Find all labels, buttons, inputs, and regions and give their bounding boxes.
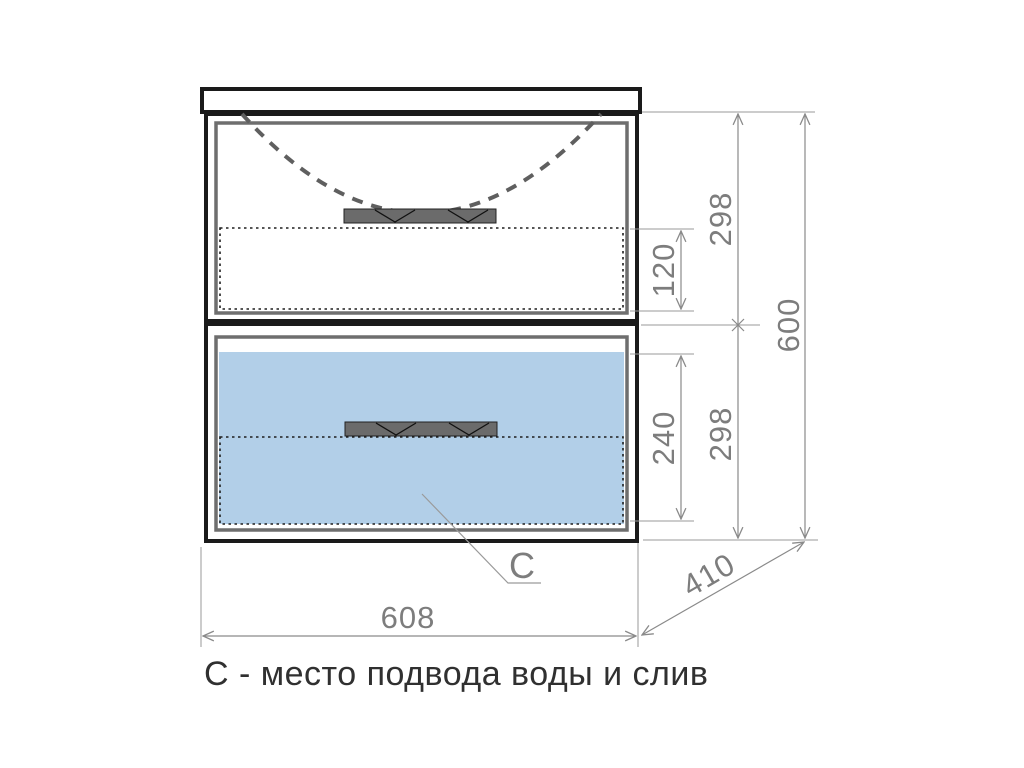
- dim-label-298-top: 298: [703, 192, 738, 247]
- dim-label-240: 240: [646, 411, 681, 466]
- technical-drawing-page: 120 240 298 298 600 608 410 C С - место …: [0, 0, 1024, 768]
- dim-label-608: 608: [381, 600, 436, 635]
- bottom-drawer-handle: [345, 422, 497, 436]
- countertop: [202, 89, 640, 112]
- label-c: C: [509, 545, 535, 586]
- dim-label-120: 120: [646, 243, 681, 298]
- top-drawer-handle: [344, 209, 496, 223]
- water-connection-zone-highlight: [219, 352, 624, 524]
- dim-label-410: 410: [676, 546, 741, 604]
- dim-label-298-bottom: 298: [703, 407, 738, 462]
- vanity-dimension-diagram: 120 240 298 298 600 608 410 C С - место …: [0, 0, 1024, 768]
- caption-water-supply: С - место подвода воды и слив: [204, 655, 708, 693]
- dim-label-600: 600: [771, 298, 806, 353]
